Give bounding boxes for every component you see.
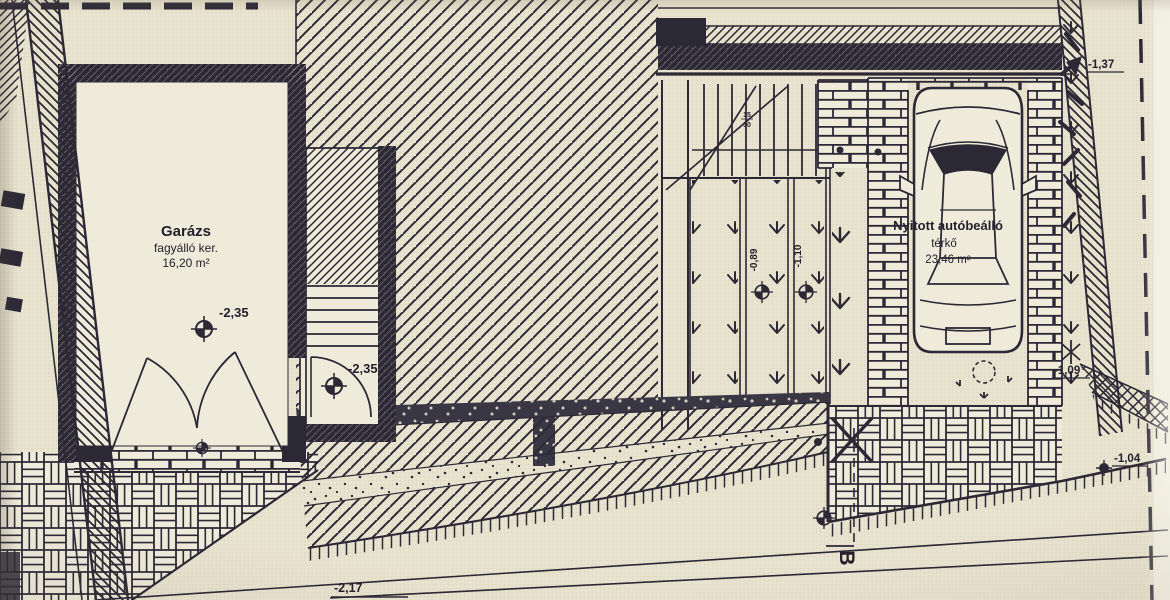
corner-shadow bbox=[0, 552, 20, 600]
survey-dot bbox=[814, 438, 822, 446]
lawn-strips: -0,89 -1,10 bbox=[690, 168, 866, 404]
level-label-ramp-bottom: -2,17 bbox=[334, 581, 363, 595]
garage-title: Garázs bbox=[161, 223, 211, 240]
level-label-landing: -2,35 bbox=[348, 361, 378, 376]
side-stairs: -2,35 bbox=[294, 146, 396, 442]
carport-surface: térkő bbox=[931, 238, 957, 250]
level-label-lawn-a: -0,89 bbox=[749, 248, 760, 271]
level-label-driveway-edge: -1,04 bbox=[1114, 453, 1141, 465]
fence-post bbox=[5, 297, 23, 313]
car-windshield bbox=[930, 145, 1006, 174]
garage-area: 16,20 m² bbox=[162, 256, 209, 270]
level-label-terrace-top: -1,37 bbox=[1088, 59, 1114, 71]
level-label-lawn-b: -1,10 bbox=[793, 244, 804, 267]
carport-title: Nyitott autóbeálló bbox=[893, 218, 1003, 233]
stair-step-note-bottom: 30 bbox=[743, 122, 751, 129]
site-plan-photo: 15 30 -0,89 -1,10 bbox=[0, 0, 1170, 600]
level-label-carport-side: -1,09 bbox=[1054, 365, 1080, 377]
level-label-garage: -2,35 bbox=[219, 305, 249, 320]
section-letter: B bbox=[835, 550, 858, 565]
paper-right-margin bbox=[1154, 0, 1170, 600]
garage-subtitle: fagyálló ker. bbox=[154, 241, 218, 255]
site-plan-drawing: 15 30 -0,89 -1,10 bbox=[0, 0, 1170, 600]
stair-step-note-top: 15 bbox=[743, 112, 751, 119]
carport-area: 23,46 m² bbox=[925, 254, 971, 266]
